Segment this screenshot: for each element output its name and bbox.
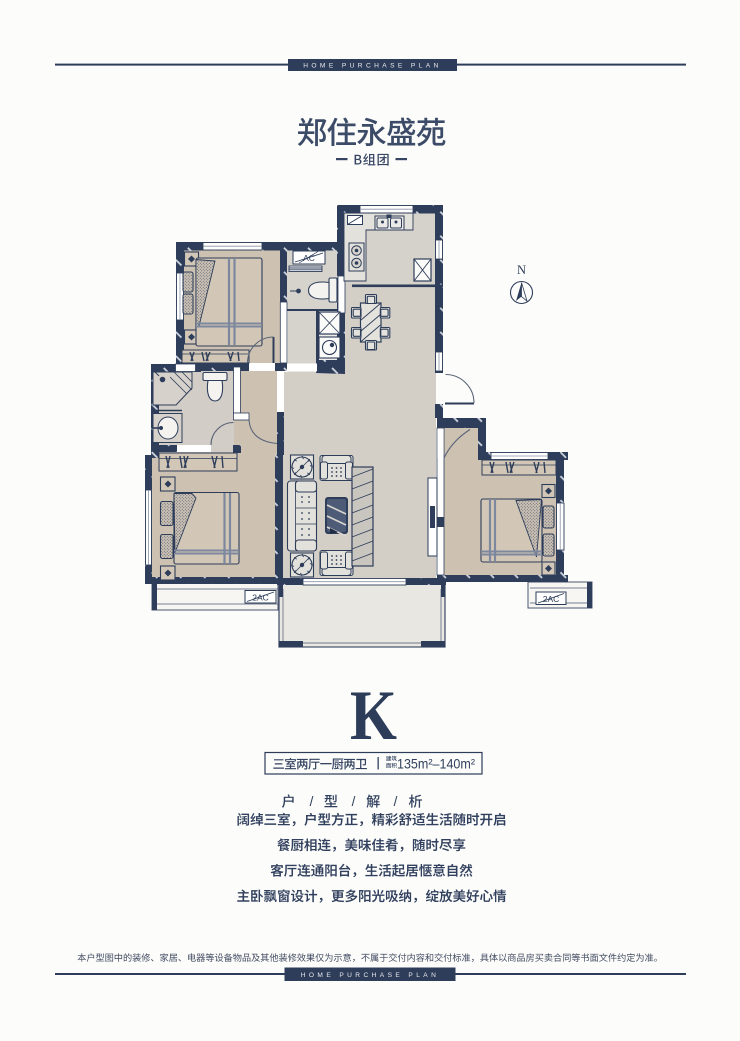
svg-text:2AC: 2AC — [252, 593, 269, 603]
svg-text:/: / — [394, 794, 398, 809]
svg-text:/: / — [310, 794, 314, 809]
svg-text:AC: AC — [303, 253, 315, 263]
svg-text:/: / — [352, 794, 356, 809]
svg-text:N: N — [517, 263, 526, 277]
svg-text:2AC: 2AC — [543, 594, 560, 604]
svg-text:K: K — [350, 677, 397, 756]
svg-text:HOME PURCHASE PLAN: HOME PURCHASE PLAN — [303, 63, 442, 70]
svg-text:HOME PURCHASE PLAN: HOME PURCHASE PLAN — [301, 972, 440, 979]
svg-text:135m²–140m²: 135m²–140m² — [397, 757, 475, 772]
